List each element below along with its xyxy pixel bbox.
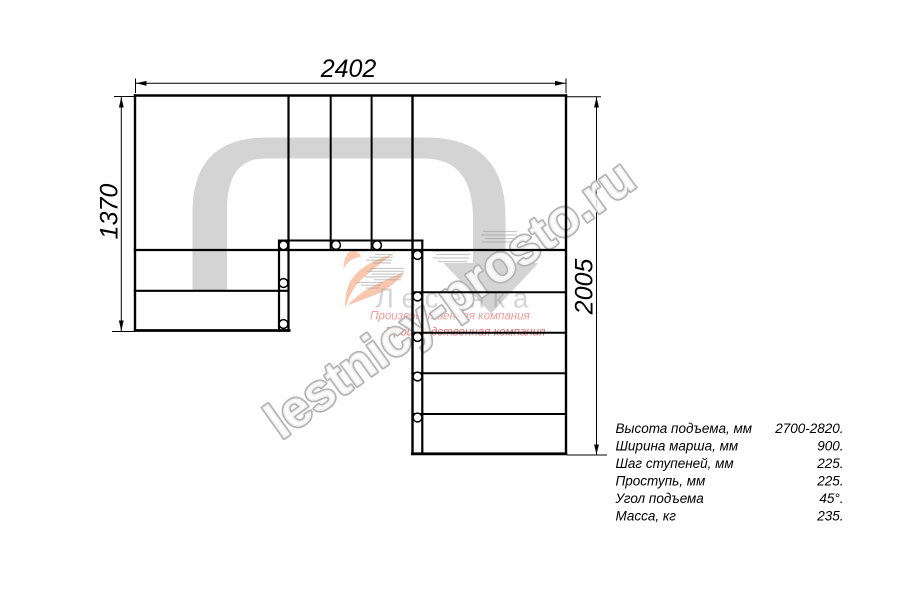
- svg-text:1370: 1370: [96, 184, 124, 240]
- svg-text:2700-2820.: 2700-2820.: [774, 421, 843, 436]
- svg-text:Высота подъема, мм: Высота подъема, мм: [616, 421, 752, 436]
- svg-text:225.: 225.: [816, 456, 843, 471]
- svg-text:Ширина марша, мм: Ширина марша, мм: [616, 439, 739, 454]
- svg-text:235.: 235.: [816, 508, 843, 523]
- svg-text:Проступь, мм: Проступь, мм: [616, 474, 706, 489]
- svg-text:900.: 900.: [817, 439, 843, 454]
- svg-text:2402: 2402: [320, 55, 377, 83]
- svg-text:45°.: 45°.: [819, 491, 843, 506]
- svg-text:2005: 2005: [571, 259, 599, 316]
- svg-text:Масса, кг: Масса, кг: [616, 508, 677, 523]
- svg-text:Шаг ступеней, мм: Шаг ступеней, мм: [616, 456, 734, 471]
- svg-text:Угол подъема: Угол подъема: [615, 491, 705, 506]
- svg-text:225.: 225.: [816, 474, 843, 489]
